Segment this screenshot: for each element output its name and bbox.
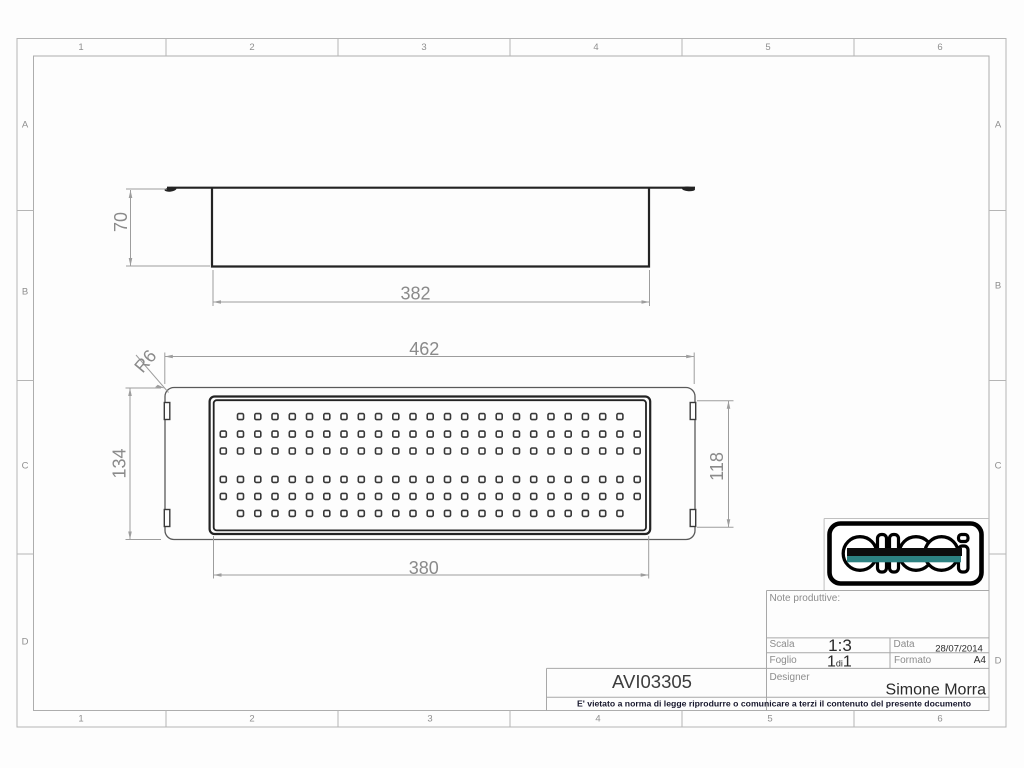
svg-text:2: 2 — [249, 42, 254, 53]
svg-text:118: 118 — [707, 452, 727, 481]
svg-text:3: 3 — [421, 42, 426, 53]
svg-text:A4: A4 — [974, 655, 987, 666]
svg-text:D: D — [995, 656, 1002, 667]
svg-text:380: 380 — [409, 558, 439, 578]
svg-text:70: 70 — [111, 212, 131, 232]
svg-text:AVI03305: AVI03305 — [612, 671, 692, 692]
svg-text:2: 2 — [249, 714, 254, 725]
svg-text:134: 134 — [110, 448, 130, 478]
svg-text:Designer: Designer — [770, 672, 811, 683]
svg-text:D: D — [22, 637, 29, 648]
svg-text:Scala: Scala — [770, 639, 795, 650]
svg-text:6: 6 — [937, 714, 942, 725]
svg-text:6: 6 — [937, 42, 942, 53]
svg-text:A: A — [995, 120, 1002, 131]
svg-text:462: 462 — [409, 339, 439, 359]
svg-text:C: C — [995, 461, 1002, 472]
svg-text:C: C — [22, 461, 29, 472]
svg-text:1:3: 1:3 — [828, 636, 852, 655]
svg-text:Note produttive:: Note produttive: — [770, 593, 841, 604]
svg-text:Foglio: Foglio — [770, 655, 798, 666]
svg-text:Simone Morra: Simone Morra — [886, 682, 987, 699]
svg-text:A: A — [22, 120, 29, 131]
svg-text:5: 5 — [767, 714, 772, 725]
svg-text:3: 3 — [427, 714, 432, 725]
svg-text:4: 4 — [595, 714, 600, 725]
svg-text:28/07/2014: 28/07/2014 — [935, 644, 983, 655]
svg-text:B: B — [995, 281, 1001, 292]
svg-text:1: 1 — [78, 42, 83, 53]
svg-text:Data: Data — [894, 639, 916, 650]
svg-text:E' vietato a norma di legge ri: E' vietato a norma di legge riprodurre o… — [577, 699, 971, 709]
svg-text:1: 1 — [78, 714, 83, 725]
svg-text:5: 5 — [765, 42, 770, 53]
svg-text:4: 4 — [593, 42, 598, 53]
svg-text:Formato: Formato — [894, 655, 932, 666]
svg-text:382: 382 — [400, 284, 430, 304]
svg-text:B: B — [22, 287, 28, 298]
